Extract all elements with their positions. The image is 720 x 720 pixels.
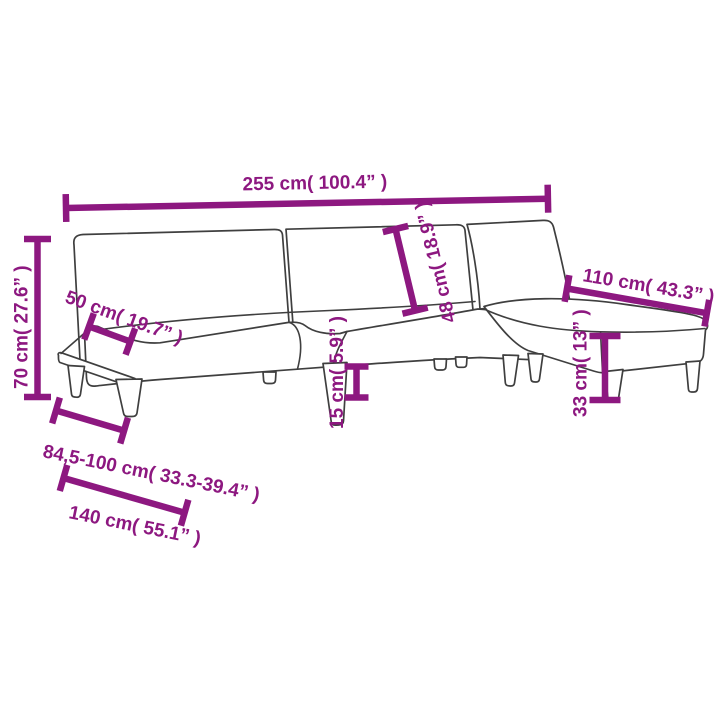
- dim-line-depth-range: [49, 397, 131, 445]
- rear-leg-left: [263, 372, 276, 384]
- label-total-width: 255 cm( 100.4” ): [242, 172, 387, 196]
- backrest-right-panel: [467, 220, 570, 309]
- armrest-leg: [68, 366, 85, 398]
- rear-leg-center: [434, 359, 447, 370]
- label-footstool-height: 33 cm( 13” ): [571, 309, 592, 417]
- junction-leg-right: [528, 354, 543, 383]
- label-total-height: 70 cm( 27.6” ): [12, 265, 33, 389]
- product-dimension-diagram: 255 cm( 100.4” ) 70 cm( 27.6” ) 50 cm( 1…: [0, 0, 720, 720]
- rear-leg-right: [456, 357, 468, 367]
- dim-line-leg-height: [345, 363, 369, 401]
- label-leg-height: 15 cm( 5.9” ): [327, 316, 348, 429]
- sofa-diagram-svg: 255 cm( 100.4” ) 70 cm( 27.6” ) 50 cm( 1…: [0, 0, 720, 720]
- footstool-right-leg: [686, 361, 700, 392]
- front-left-leg: [116, 379, 142, 417]
- junction-leg-left: [503, 355, 519, 386]
- label-depth-range: 84,5-100 cm( 33.3-39.4” ): [41, 441, 262, 506]
